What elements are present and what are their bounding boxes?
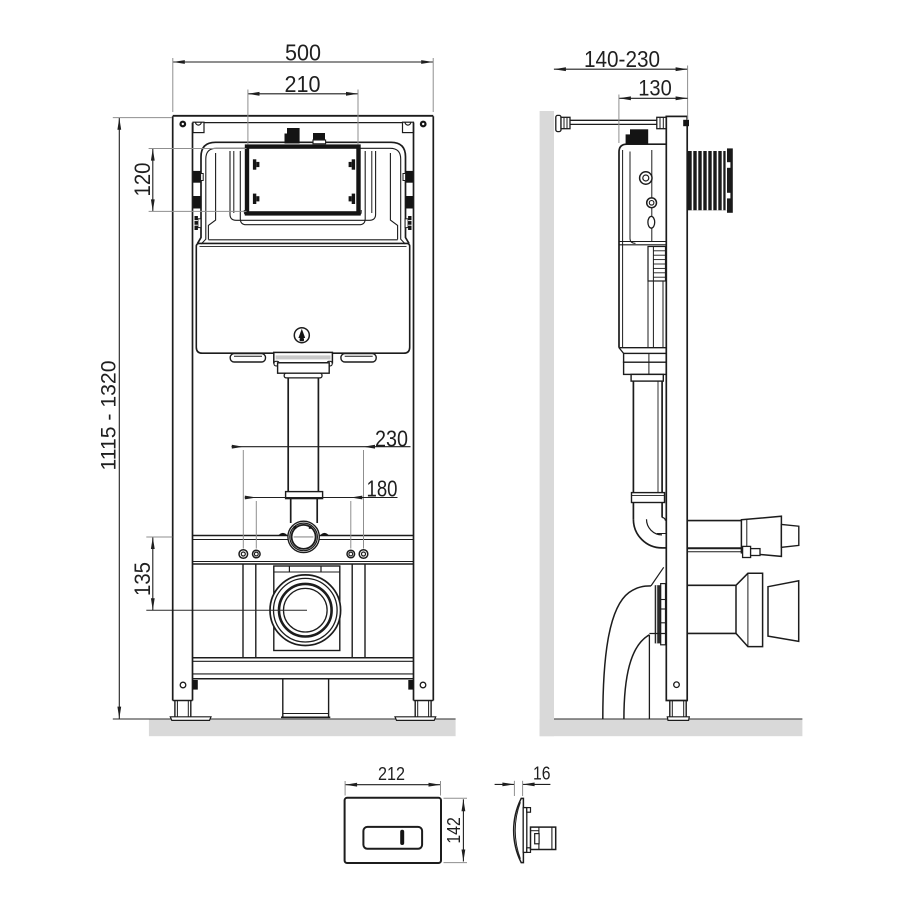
svg-text:500: 500 (285, 40, 321, 66)
svg-text:130: 130 (638, 76, 672, 101)
svg-text:1115 - 1320: 1115 - 1320 (98, 361, 121, 471)
svg-text:135: 135 (130, 562, 155, 596)
svg-text:212: 212 (378, 764, 405, 784)
svg-text:230: 230 (375, 425, 408, 451)
svg-text:16: 16 (533, 764, 551, 784)
svg-text:140-230: 140-230 (584, 46, 660, 72)
svg-text:210: 210 (285, 71, 321, 97)
svg-text:180: 180 (367, 475, 398, 501)
svg-text:142: 142 (444, 817, 464, 844)
svg-text:120: 120 (130, 163, 155, 197)
